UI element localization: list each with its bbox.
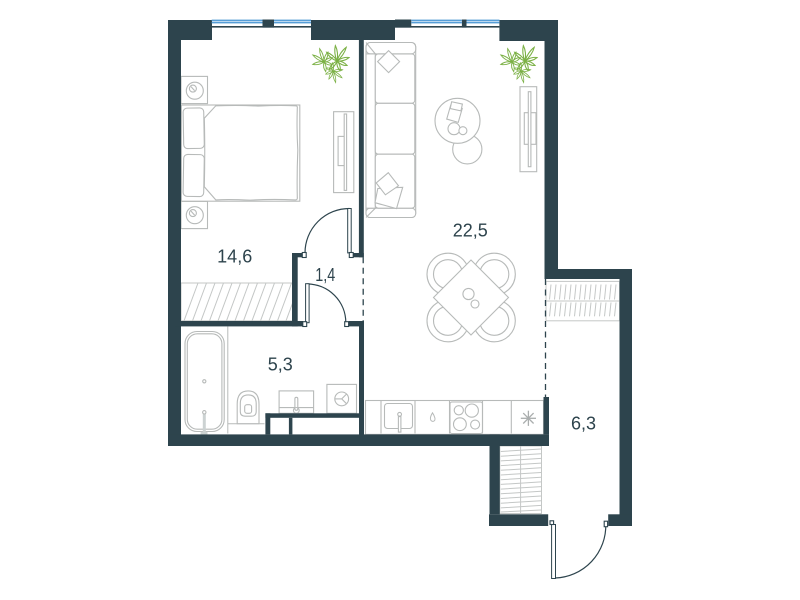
svg-text:14,6: 14,6 <box>217 247 252 267</box>
svg-text:6,3: 6,3 <box>571 413 596 433</box>
svg-text:1,4: 1,4 <box>315 265 335 285</box>
svg-text:22,5: 22,5 <box>453 220 488 240</box>
svg-text:5,3: 5,3 <box>268 355 293 375</box>
